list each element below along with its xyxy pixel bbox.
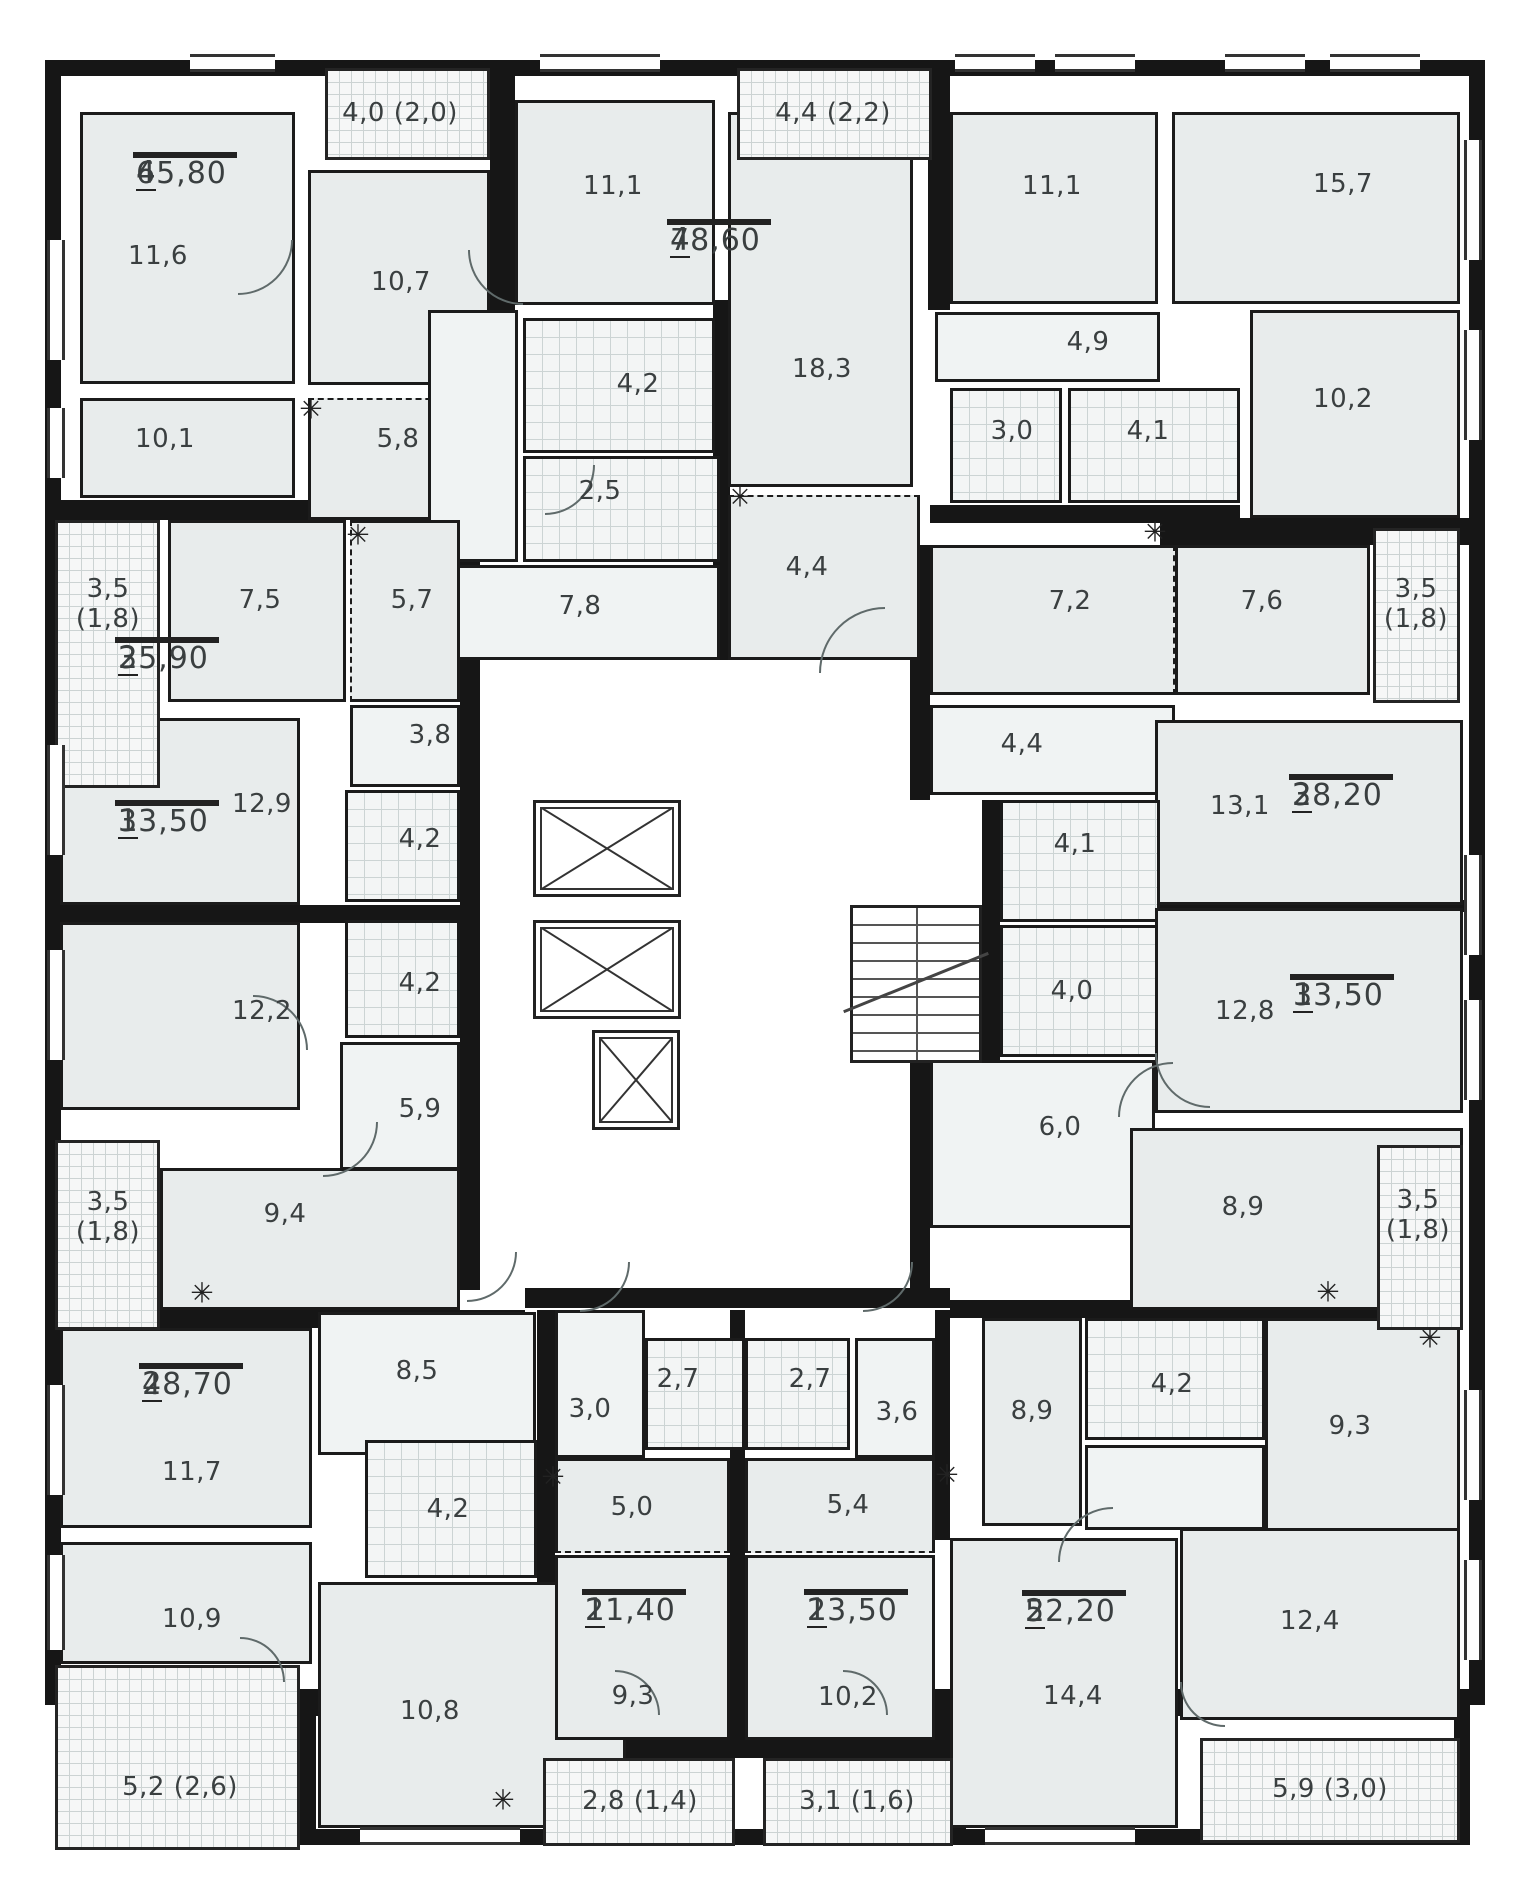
room-area-label: 4,4 <box>786 553 829 583</box>
appliance-icon: ✳ <box>541 1461 564 1494</box>
apartment-area: 33,50 <box>118 803 209 840</box>
window-icon <box>1464 330 1482 440</box>
window-icon <box>540 54 660 72</box>
apartment-info-box: 252,20 <box>1022 1590 1126 1596</box>
wall <box>910 1060 930 1290</box>
room-area-label: 7,8 <box>559 592 602 622</box>
room-area-label: 7,6 <box>1241 587 1284 617</box>
window-icon <box>955 54 1035 72</box>
window-icon <box>1464 140 1482 260</box>
apartment-info-box: 121,40 <box>582 1589 686 1595</box>
room-area-label: 4,2 <box>399 969 442 999</box>
balcony-area-label: 4,0 (2,0) <box>342 99 458 129</box>
room-area-label: 8,9 <box>1011 1397 1054 1427</box>
window-icon <box>985 1827 1135 1845</box>
room-area-label: 11,7 <box>162 1458 222 1488</box>
room-area-label: 4,4 <box>1001 730 1044 760</box>
room-area-label: 11,6 <box>128 242 188 272</box>
room-area-label: 10,2 <box>818 1683 878 1713</box>
apartment-info-box: 235,90 <box>115 637 219 643</box>
room-area-label: 12,2 <box>232 997 292 1027</box>
room-area-label: 12,9 <box>232 790 292 820</box>
room <box>930 545 1175 695</box>
room-area-label: 4,9 <box>1067 328 1110 358</box>
room-area-label: 9,3 <box>612 1682 655 1712</box>
room-area-label: 10,8 <box>400 1697 460 1727</box>
floor-plan: 4,0 (2,0)4,4 (2,2)3,5 (1,8)3,5 (1,8)3,5 … <box>0 0 1529 1900</box>
stairwell <box>850 905 982 1063</box>
apartment-info-box: 133,50 <box>1290 974 1394 980</box>
elevator-shaft <box>592 1030 680 1130</box>
room-area-label: 12,8 <box>1215 997 1275 1027</box>
apartment-area: 23,50 <box>807 1592 898 1629</box>
room-area-label: 10,9 <box>162 1605 222 1635</box>
window-icon <box>47 745 65 855</box>
room-area-label: 4,1 <box>1127 417 1170 447</box>
room-area-label: 10,2 <box>1313 385 1373 415</box>
balcony-area-label: 4,4 (2,2) <box>775 99 891 129</box>
balcony-area-label: 5,9 (3,0) <box>1272 1775 1388 1805</box>
balcony-area-label: 3,5 (1,8) <box>76 1188 140 1248</box>
appliance-icon: ✳ <box>491 1784 514 1817</box>
room-area-label: 3,8 <box>409 721 452 751</box>
room-area-label: 4,2 <box>427 1495 470 1525</box>
room-area-label: 11,1 <box>583 172 643 202</box>
apartment-area: 48,70 <box>142 1366 233 1403</box>
appliance-icon: ✳ <box>1143 516 1166 549</box>
room-area-label: 9,4 <box>264 1200 307 1230</box>
hallway <box>935 312 1160 382</box>
room <box>60 1328 312 1528</box>
room <box>60 1542 312 1664</box>
room-area-label: 13,1 <box>1210 792 1270 822</box>
apartment-info-box: 478,60 <box>667 219 771 225</box>
room-area-label: 3,6 <box>876 1398 919 1428</box>
room <box>950 112 1158 304</box>
elevator-x-icon <box>540 927 674 1012</box>
room-area-label: 14,4 <box>1043 1682 1103 1712</box>
room-area-label: 3,0 <box>991 417 1034 447</box>
room-area-label: 5,0 <box>611 1493 654 1523</box>
room-area-label: 2,7 <box>789 1365 832 1395</box>
room-area-label: 2,5 <box>579 477 622 507</box>
balcony-area-label: 3,5 (1,8) <box>76 575 140 635</box>
window-icon <box>47 408 65 478</box>
window-icon <box>1464 1000 1482 1100</box>
room-area-label: 6,0 <box>1039 1113 1082 1143</box>
bathroom <box>1000 800 1160 922</box>
elevator-x-icon <box>540 807 674 890</box>
appliance-icon: ✳ <box>728 481 751 514</box>
apartment-area: 38,20 <box>1292 777 1383 814</box>
room-area-label: 3,0 <box>569 1395 612 1425</box>
elevator-x-icon <box>599 1037 673 1123</box>
balcony-area-label: 3,1 (1,6) <box>799 1787 915 1817</box>
apartment-area: 35,90 <box>118 640 209 677</box>
apartment-info-box: 465,80 <box>133 152 237 158</box>
room-area-label: 2,7 <box>657 1365 700 1395</box>
hallway <box>930 1060 1155 1228</box>
room-area-label: 5,4 <box>827 1491 870 1521</box>
window-icon <box>1330 54 1420 72</box>
appliance-icon: ✳ <box>935 1459 958 1492</box>
balcony-area-label: 3,5 (1,8) <box>1384 575 1448 635</box>
wall <box>982 800 1000 1060</box>
room-area-label: 8,5 <box>396 1357 439 1387</box>
apartment-area: 65,80 <box>136 155 227 192</box>
room <box>515 100 715 305</box>
room-area-label: 8,9 <box>1222 1193 1265 1223</box>
room-area-label: 7,2 <box>1049 587 1092 617</box>
apartment-area: 52,20 <box>1025 1593 1116 1630</box>
room-area-label: 5,9 <box>399 1095 442 1125</box>
appliance-icon: ✳ <box>1418 1322 1441 1355</box>
room-area-label: 4,2 <box>1151 1370 1194 1400</box>
elevator-shaft <box>533 800 681 897</box>
apartment-info-box: 238,20 <box>1289 774 1393 780</box>
window-icon <box>1464 855 1482 955</box>
room-area-label: 4,1 <box>1054 830 1097 860</box>
window-icon <box>47 1385 65 1495</box>
room-area-label: 11,1 <box>1022 172 1082 202</box>
wall <box>935 1310 950 1540</box>
balcony-area-label: 3,5 (1,8) <box>1386 1186 1450 1246</box>
appliance-icon: ✳ <box>190 1277 213 1310</box>
room-area-label: 5,8 <box>377 425 420 455</box>
window-icon <box>47 240 65 360</box>
balcony <box>55 1665 300 1850</box>
apartment-area: 33,50 <box>1293 977 1384 1014</box>
apartment-area: 78,60 <box>670 222 761 259</box>
window-icon <box>1464 1560 1482 1660</box>
appliance-icon: ✳ <box>299 393 322 426</box>
room <box>728 112 913 487</box>
balcony-area-label: 5,2 (2,6) <box>122 1773 238 1803</box>
elevator-shaft <box>533 920 681 1019</box>
balcony-area-label: 2,8 (1,4) <box>582 1787 698 1817</box>
room-area-label: 7,5 <box>239 586 282 616</box>
window-icon <box>360 1827 520 1845</box>
window-icon <box>1464 1390 1482 1500</box>
room-area-label: 4,2 <box>617 370 660 400</box>
room-area-label: 4,0 <box>1051 977 1094 1007</box>
room-area-label: 5,7 <box>391 586 434 616</box>
room-area-label: 10,7 <box>371 268 431 298</box>
window-icon <box>1225 54 1305 72</box>
hallway <box>930 705 1175 795</box>
room-area-label: 18,3 <box>792 355 852 385</box>
apartment-info-box: 123,50 <box>804 1589 908 1595</box>
room-area-label: 15,7 <box>1313 170 1373 200</box>
room-area-label: 12,4 <box>1280 1607 1340 1637</box>
window-icon <box>190 54 275 72</box>
apartment-info-box: 133,50 <box>115 800 219 806</box>
appliance-icon: ✳ <box>1316 1276 1339 1309</box>
apartment-area: 21,40 <box>585 1592 676 1629</box>
window-icon <box>47 950 65 1060</box>
window-icon <box>47 1555 65 1650</box>
hallway <box>555 1310 645 1458</box>
room-area-label: 4,2 <box>399 825 442 855</box>
room-area-label: 10,1 <box>135 425 195 455</box>
apartment-info-box: 248,70 <box>139 1363 243 1369</box>
room-area-label: 9,3 <box>1329 1412 1372 1442</box>
room <box>1172 112 1460 304</box>
room <box>1175 545 1370 695</box>
appliance-icon: ✳ <box>346 519 369 552</box>
window-icon <box>1055 54 1135 72</box>
